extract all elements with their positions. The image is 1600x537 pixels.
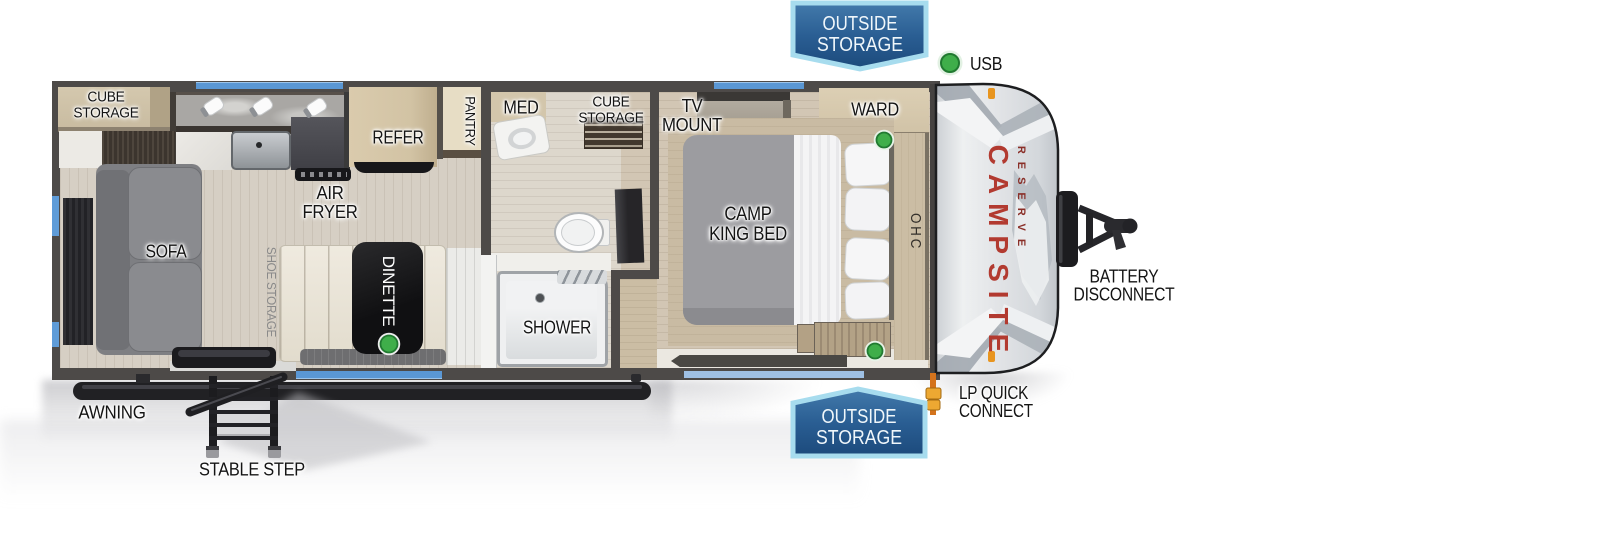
svg-text:OUTSIDE: OUTSIDE <box>822 406 897 428</box>
svg-text:STORAGE: STORAGE <box>817 34 903 56</box>
svg-text:STORAGE: STORAGE <box>816 427 902 449</box>
svg-text:OUTSIDE: OUTSIDE <box>823 13 898 35</box>
